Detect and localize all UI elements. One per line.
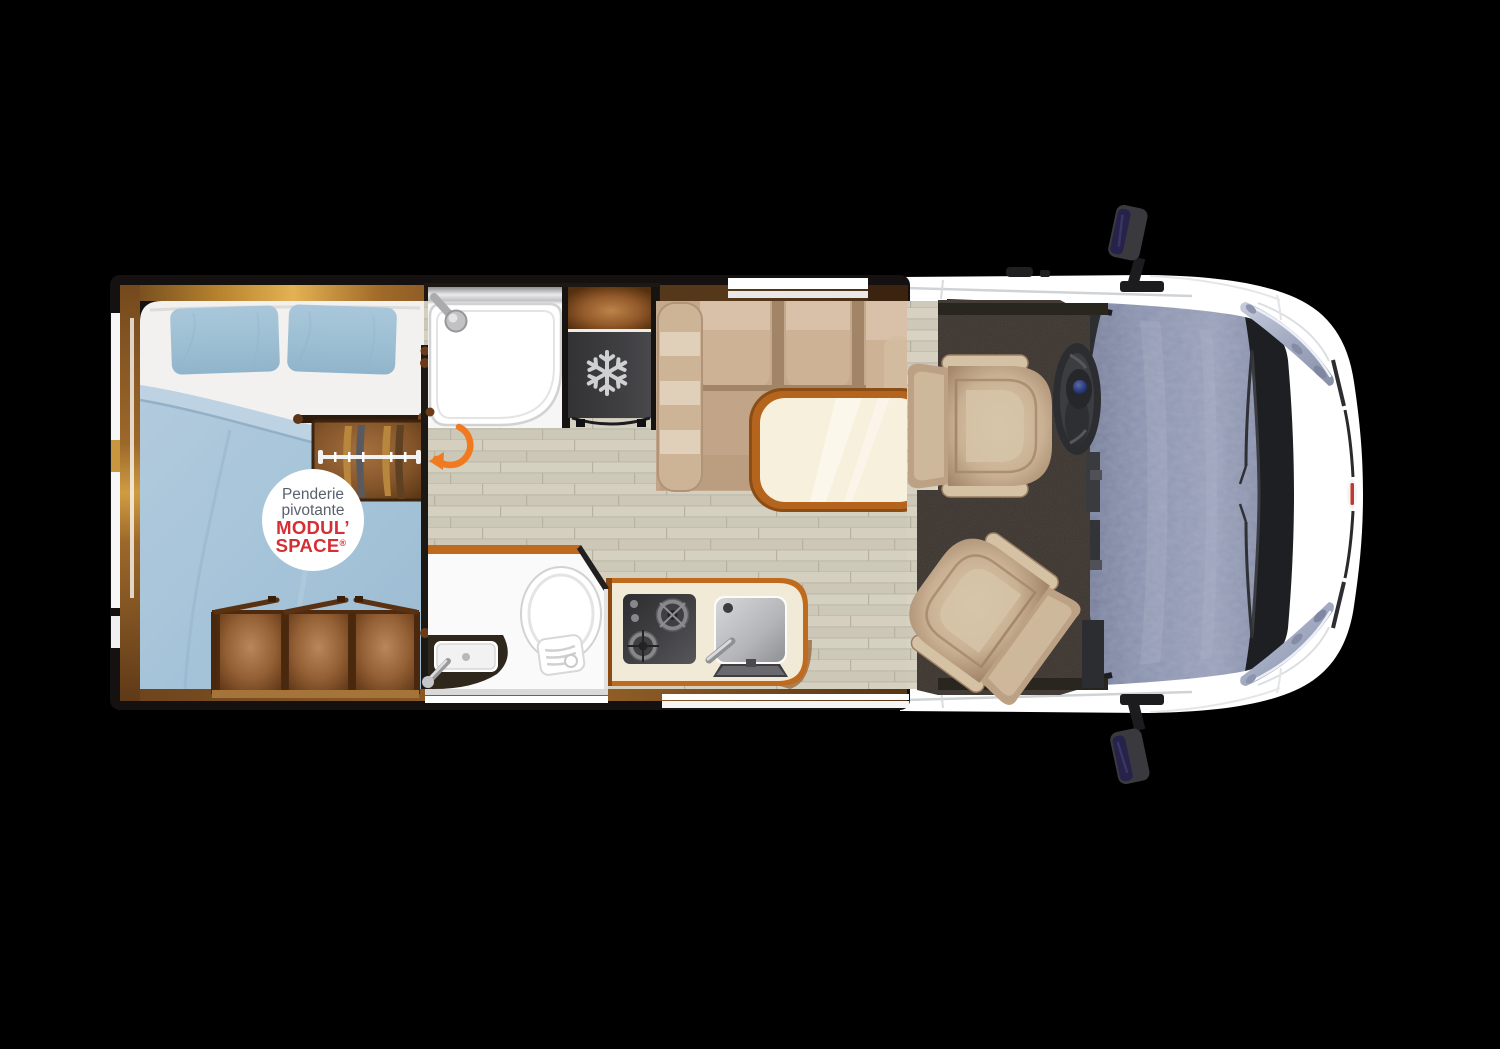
svg-text:SPACE®: SPACE® (276, 535, 347, 556)
svg-text:Penderie: Penderie (282, 486, 344, 503)
